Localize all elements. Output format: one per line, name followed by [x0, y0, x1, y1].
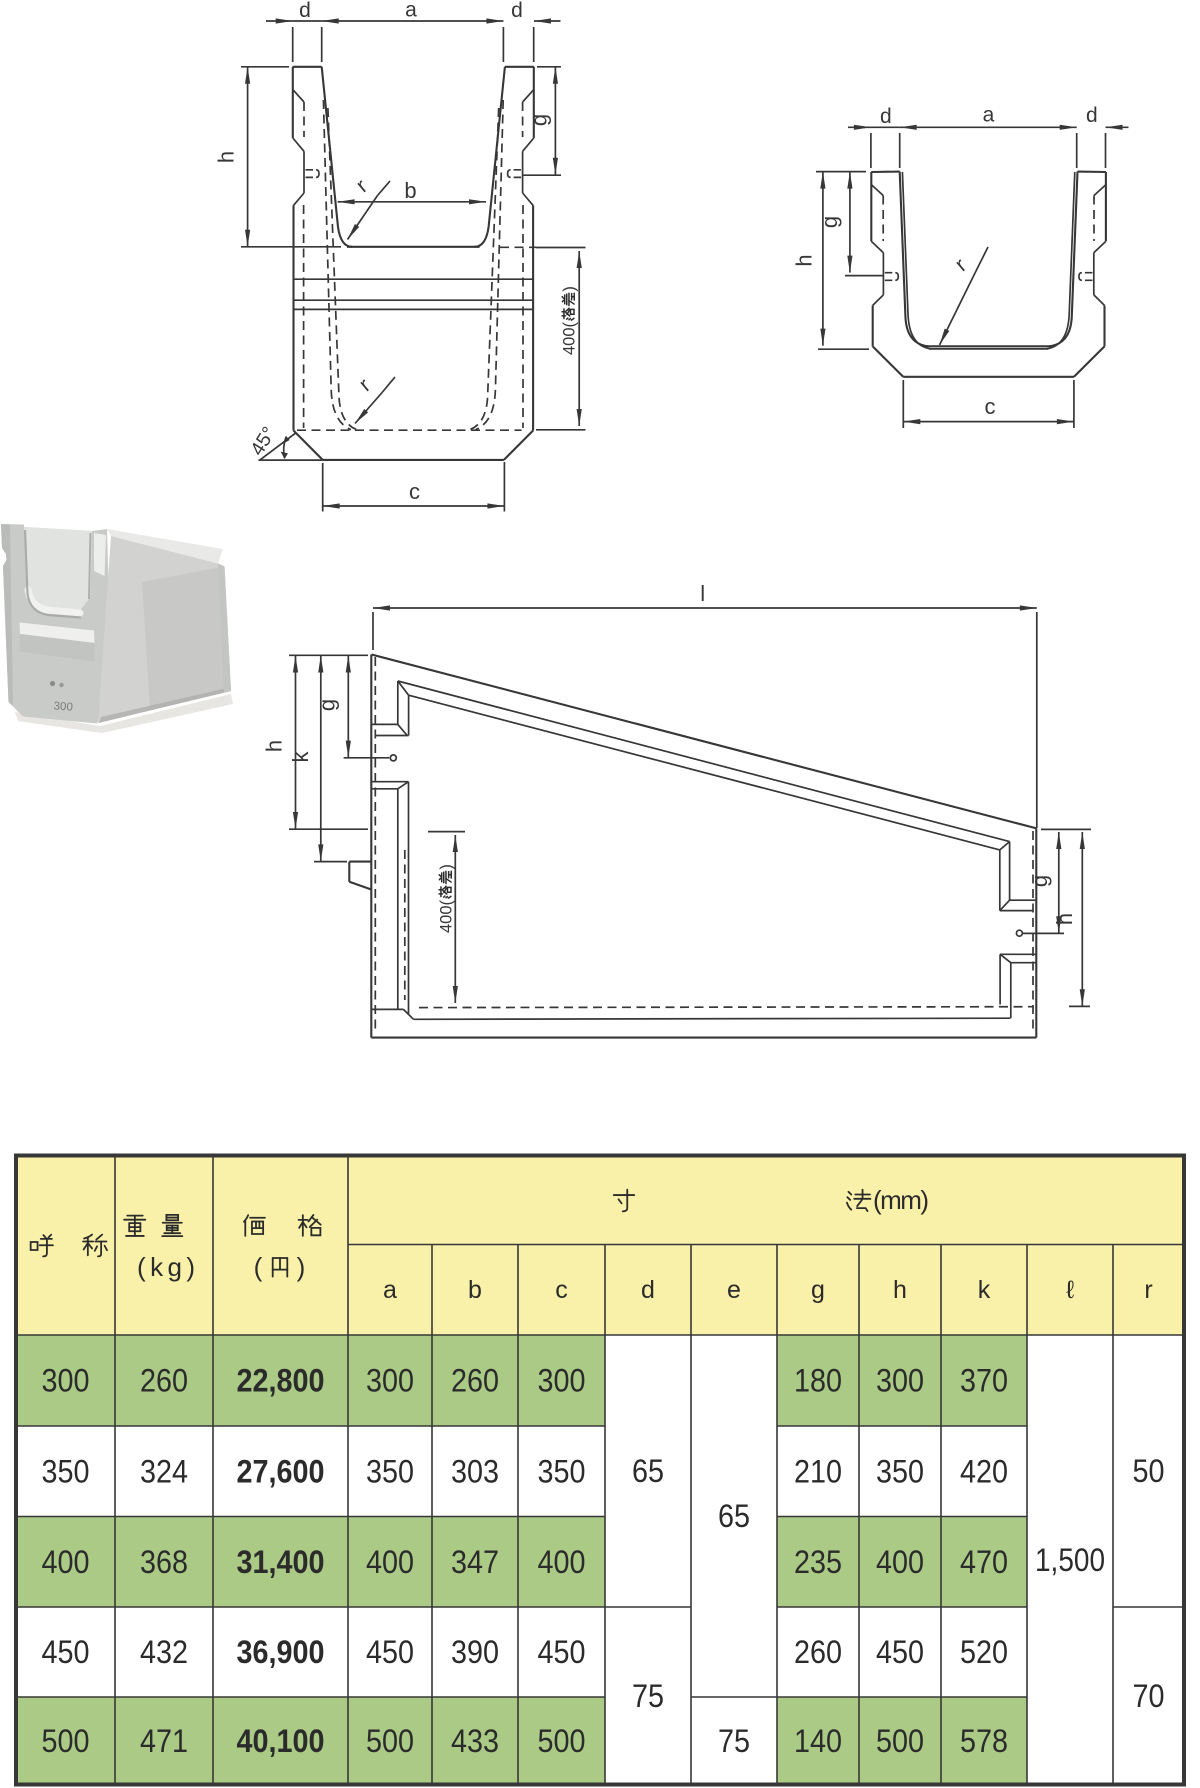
- svg-text:45°: 45°: [246, 423, 280, 460]
- svg-text:40,100: 40,100: [237, 1723, 325, 1759]
- svg-text:k: k: [288, 751, 313, 763]
- svg-text:350: 350: [876, 1453, 924, 1489]
- svg-text:(mm): (mm): [873, 1185, 929, 1215]
- svg-text:450: 450: [538, 1634, 586, 1670]
- svg-text:350: 350: [366, 1453, 414, 1489]
- svg-text:50: 50: [1133, 1453, 1165, 1489]
- svg-text:65: 65: [718, 1498, 750, 1534]
- svg-text:450: 450: [876, 1634, 924, 1670]
- svg-text:c: c: [985, 394, 996, 419]
- svg-text:b: b: [404, 178, 416, 203]
- svg-text:235: 235: [794, 1544, 842, 1580]
- svg-text:300: 300: [876, 1363, 924, 1399]
- svg-text:g: g: [527, 114, 552, 126]
- svg-text:g: g: [811, 1276, 825, 1304]
- svg-text:260: 260: [140, 1363, 188, 1399]
- svg-text:e: e: [727, 1276, 741, 1304]
- svg-text:433: 433: [451, 1723, 499, 1759]
- svg-text:500: 500: [876, 1723, 924, 1759]
- svg-text:471: 471: [140, 1723, 188, 1759]
- svg-text:324: 324: [140, 1453, 188, 1489]
- svg-text:): ): [560, 286, 578, 292]
- svg-text:450: 450: [42, 1634, 90, 1670]
- svg-text:450: 450: [366, 1634, 414, 1670]
- svg-text:h: h: [792, 254, 817, 266]
- svg-text:d: d: [511, 0, 523, 22]
- svg-text:420: 420: [960, 1453, 1008, 1489]
- svg-text:): ): [437, 864, 455, 870]
- svg-text:g: g: [817, 216, 842, 228]
- svg-text:350: 350: [538, 1453, 586, 1489]
- svg-text:g: g: [315, 699, 340, 711]
- svg-text:h: h: [1052, 913, 1077, 925]
- svg-text:470: 470: [960, 1544, 1008, 1580]
- svg-text:): ): [297, 1252, 306, 1282]
- svg-text:500: 500: [538, 1723, 586, 1759]
- svg-text:390: 390: [451, 1634, 499, 1670]
- svg-text:260: 260: [794, 1634, 842, 1670]
- svg-text:400(: 400(: [437, 900, 455, 934]
- svg-text:r: r: [355, 374, 375, 396]
- svg-text:d: d: [1086, 104, 1098, 127]
- svg-text:140: 140: [794, 1723, 842, 1759]
- svg-text:303: 303: [451, 1453, 499, 1489]
- svg-text:70: 70: [1133, 1678, 1165, 1714]
- svg-text:a: a: [383, 1276, 397, 1304]
- svg-text:500: 500: [42, 1723, 90, 1759]
- svg-text:g: g: [1027, 875, 1052, 887]
- svg-text:75: 75: [718, 1723, 750, 1759]
- svg-text:300: 300: [366, 1363, 414, 1399]
- svg-text:368: 368: [140, 1544, 188, 1580]
- svg-text:520: 520: [960, 1634, 1008, 1670]
- svg-text:31,400: 31,400: [237, 1544, 325, 1580]
- svg-text:r: r: [951, 254, 971, 276]
- svg-text:180: 180: [794, 1363, 842, 1399]
- svg-text:300: 300: [42, 1363, 90, 1399]
- svg-text:(: (: [254, 1252, 263, 1282]
- svg-text:l: l: [700, 581, 705, 606]
- svg-text:d: d: [641, 1276, 655, 1304]
- svg-text:300: 300: [538, 1363, 586, 1399]
- svg-text:27,600: 27,600: [237, 1453, 325, 1489]
- svg-text:400: 400: [42, 1544, 90, 1580]
- svg-text:400: 400: [876, 1544, 924, 1580]
- svg-text:400(: 400(: [560, 322, 578, 356]
- svg-text:22,800: 22,800: [237, 1363, 325, 1399]
- svg-text:500: 500: [366, 1723, 414, 1759]
- svg-text:ℓ: ℓ: [1066, 1276, 1075, 1304]
- svg-text:d: d: [299, 0, 311, 22]
- svg-text:300: 300: [53, 700, 73, 713]
- svg-text:260: 260: [451, 1363, 499, 1399]
- svg-text:210: 210: [794, 1453, 842, 1489]
- svg-text:h: h: [893, 1276, 907, 1304]
- svg-text:c: c: [555, 1276, 568, 1304]
- svg-text:432: 432: [140, 1634, 188, 1670]
- svg-text:h: h: [262, 740, 287, 752]
- svg-text:b: b: [468, 1276, 482, 1304]
- svg-text:75: 75: [632, 1678, 664, 1714]
- svg-text:d: d: [880, 105, 892, 128]
- svg-text:r: r: [1144, 1276, 1152, 1304]
- svg-text:c: c: [409, 479, 420, 504]
- svg-text:400: 400: [538, 1544, 586, 1580]
- svg-text:65: 65: [632, 1453, 664, 1489]
- svg-text:a: a: [405, 0, 417, 22]
- svg-text:400: 400: [366, 1544, 414, 1580]
- svg-text:578: 578: [960, 1723, 1008, 1759]
- svg-text:1,500: 1,500: [1035, 1542, 1105, 1578]
- svg-text:a: a: [983, 104, 995, 127]
- svg-text:h: h: [214, 151, 239, 163]
- svg-text:350: 350: [42, 1453, 90, 1489]
- svg-text:347: 347: [451, 1544, 499, 1580]
- svg-text:r: r: [352, 175, 372, 197]
- svg-text:k: k: [978, 1276, 991, 1304]
- svg-text:36,900: 36,900: [237, 1634, 325, 1670]
- svg-text:370: 370: [960, 1363, 1008, 1399]
